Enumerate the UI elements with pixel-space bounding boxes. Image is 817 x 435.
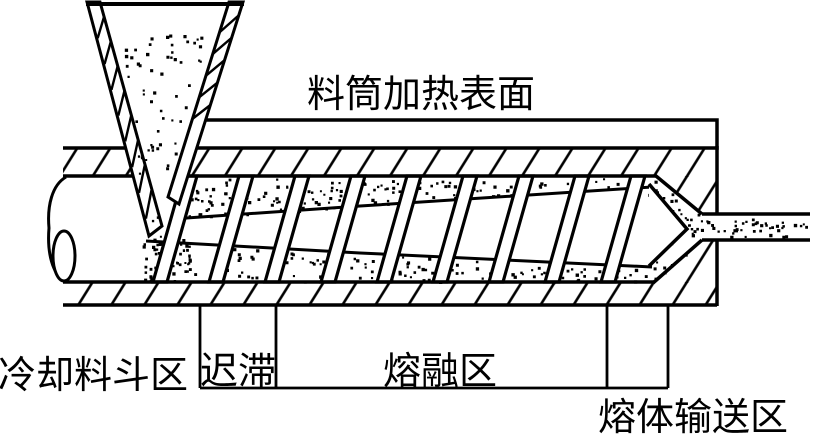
barrel-bottom-wall <box>63 282 717 305</box>
label-barrel-heating-surface: 料筒加热表面 <box>307 74 535 116</box>
extruder-melting-diagram: 料筒加热表面 冷却料斗区 迟滞 熔融区 熔体输送区 <box>0 0 817 435</box>
label-melting-zone: 熔融区 <box>383 351 497 393</box>
screw-shaft-journal <box>53 231 75 281</box>
label-cooling-hopper-zone: 冷却料斗区 <box>0 355 188 397</box>
label-melt-conveying-zone: 熔体输送区 <box>598 397 788 435</box>
barrel-heater-band <box>188 120 717 148</box>
label-delay-zone: 迟滞 <box>200 351 276 393</box>
diagram-canvas: 料筒加热表面 冷却料斗区 迟滞 熔融区 熔体输送区 <box>0 0 817 435</box>
